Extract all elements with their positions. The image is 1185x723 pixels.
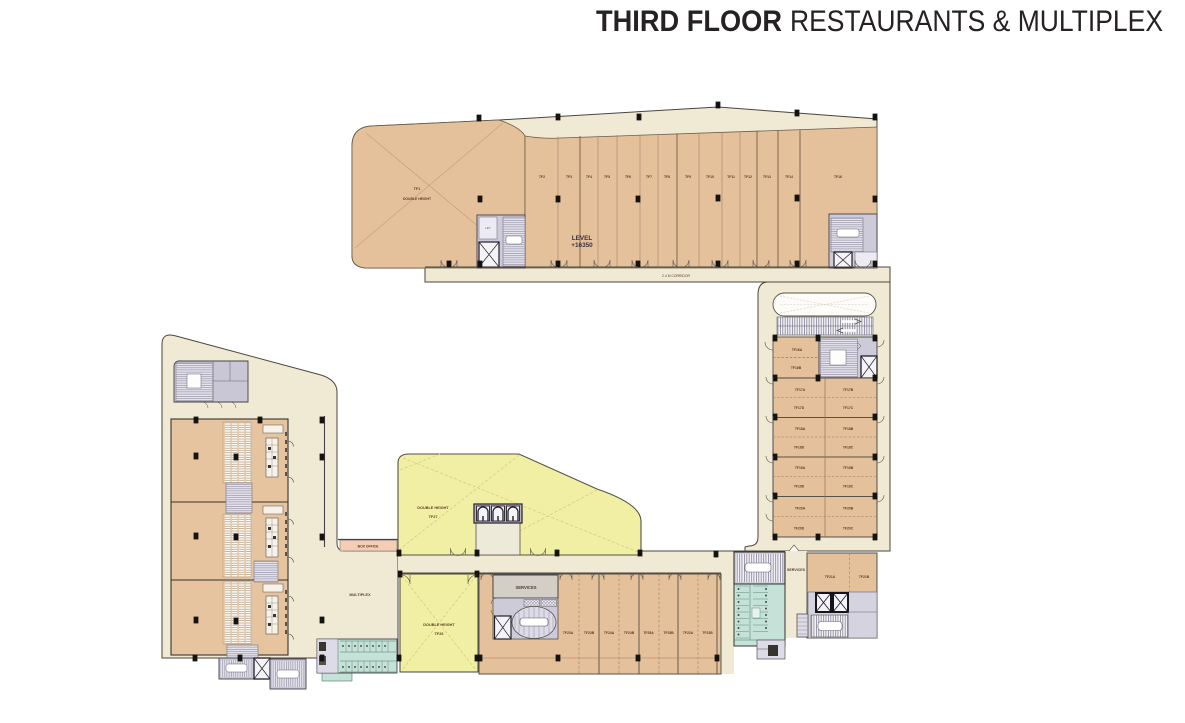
svg-text:TF17C: TF17C <box>843 406 854 410</box>
svg-text:TF20A: TF20A <box>795 507 806 511</box>
svg-text:TF24A: TF24A <box>604 631 615 635</box>
svg-text:TF21B: TF21B <box>859 575 870 579</box>
svg-text:TF6: TF6 <box>625 175 631 179</box>
svg-text:TF11: TF11 <box>727 175 735 179</box>
svg-text:RESTAURANTS & MULTIPLEX: RESTAURANTS & MULTIPLEX <box>790 5 1163 38</box>
svg-text:TF18B: TF18B <box>843 427 854 431</box>
svg-text:TF21A: TF21A <box>825 575 836 579</box>
svg-text:TF7: TF7 <box>646 175 652 179</box>
svg-text:TF18D: TF18D <box>794 446 805 450</box>
svg-text:TF13: TF13 <box>763 175 771 179</box>
svg-text:DOUBLE HEIGHT: DOUBLE HEIGHT <box>403 197 432 201</box>
svg-text:TF17B: TF17B <box>843 388 854 392</box>
svg-text:TF17A: TF17A <box>795 388 806 392</box>
svg-text:TF20B: TF20B <box>843 507 854 511</box>
svg-text:TF2: TF2 <box>539 175 545 179</box>
svg-text:SERVICES: SERVICES <box>787 568 806 572</box>
svg-text:SERVICES: SERVICES <box>515 585 536 590</box>
svg-text:TF19C: TF19C <box>843 485 854 489</box>
svg-text:DOUBLE HEIGHT: DOUBLE HEIGHT <box>417 506 449 510</box>
svg-text:THIRD FLOOR: THIRD FLOOR <box>596 5 782 38</box>
svg-text:TF1: TF1 <box>414 187 421 191</box>
svg-text:TF19B: TF19B <box>843 466 854 470</box>
svg-text:BOX OFFICE: BOX OFFICE <box>358 545 379 549</box>
svg-text:TF26: TF26 <box>435 632 444 636</box>
svg-text:+16350: +16350 <box>571 242 593 249</box>
svg-text:TF12: TF12 <box>744 175 752 179</box>
svg-text:TF22A: TF22A <box>683 631 694 635</box>
svg-text:TF25B: TF25B <box>663 631 674 635</box>
svg-text:TF22B: TF22B <box>702 631 713 635</box>
svg-text:TF16B: TF16B <box>791 366 802 370</box>
svg-text:TF20D: TF20D <box>794 527 805 531</box>
svg-text:TF27: TF27 <box>429 515 438 519</box>
svg-text:2.4 M CORRIDOR: 2.4 M CORRIDOR <box>662 274 690 278</box>
svg-text:MULTIPLEX: MULTIPLEX <box>349 593 371 597</box>
svg-text:TF17D: TF17D <box>794 406 805 410</box>
svg-text:TF5: TF5 <box>604 175 610 179</box>
svg-text:TF19A: TF19A <box>795 466 806 470</box>
svg-text:TF23A: TF23A <box>563 631 574 635</box>
svg-text:TF18C: TF18C <box>843 446 854 450</box>
svg-text:TF16: TF16 <box>834 175 842 179</box>
svg-text:TF9: TF9 <box>685 175 691 179</box>
svg-text:TF19D: TF19D <box>794 485 805 489</box>
svg-text:TF24B: TF24B <box>624 631 635 635</box>
svg-text:LIFT: LIFT <box>485 226 491 230</box>
svg-text:TF3: TF3 <box>566 175 572 179</box>
svg-text:TF14: TF14 <box>785 175 793 179</box>
svg-text:TF20C: TF20C <box>843 527 854 531</box>
svg-text:TF25A: TF25A <box>643 631 654 635</box>
svg-text:DOUBLE HEIGHT: DOUBLE HEIGHT <box>423 623 455 627</box>
svg-text:TF8: TF8 <box>664 175 670 179</box>
svg-text:TF4: TF4 <box>586 175 592 179</box>
svg-text:LEVEL: LEVEL <box>572 235 593 242</box>
svg-text:TF23B: TF23B <box>584 631 595 635</box>
svg-text:TF10: TF10 <box>706 175 714 179</box>
svg-text:TF18A: TF18A <box>795 427 806 431</box>
svg-text:TF16A: TF16A <box>792 348 803 352</box>
